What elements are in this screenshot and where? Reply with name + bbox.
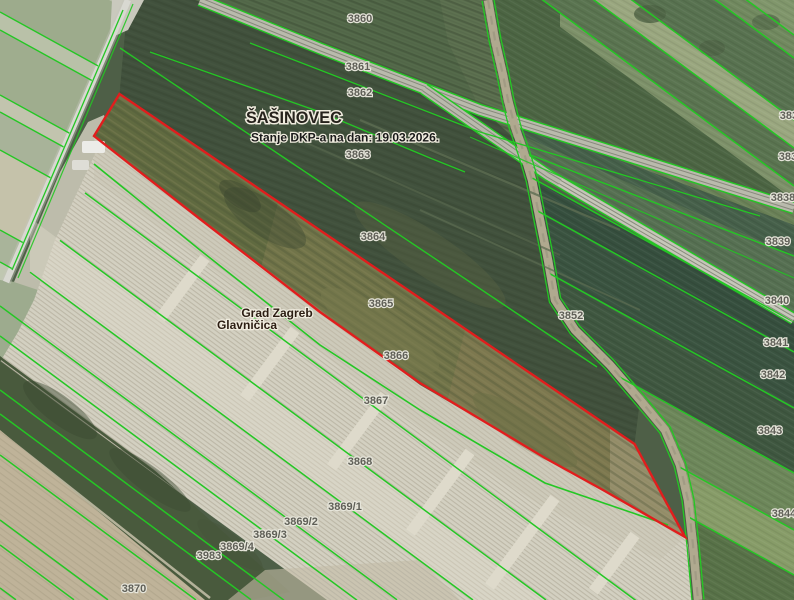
svg-text:3843: 3843 bbox=[758, 425, 782, 437]
svg-text:3852: 3852 bbox=[559, 310, 583, 322]
svg-text:3840: 3840 bbox=[765, 295, 789, 307]
svg-text:ŠAŠINOVEC: ŠAŠINOVEC bbox=[246, 108, 342, 127]
svg-text:Stanje DKP-a na dan: 19.03.202: Stanje DKP-a na dan: 19.03.2026. bbox=[251, 131, 439, 145]
svg-text:3864: 3864 bbox=[361, 231, 386, 243]
svg-text:3860: 3860 bbox=[348, 13, 372, 25]
svg-text:3869/2: 3869/2 bbox=[284, 516, 318, 528]
svg-text:3867: 3867 bbox=[364, 395, 388, 407]
svg-text:3837: 3837 bbox=[779, 151, 794, 163]
svg-text:3861: 3861 bbox=[346, 61, 370, 73]
svg-text:3844: 3844 bbox=[772, 508, 794, 520]
svg-text:3862: 3862 bbox=[348, 87, 372, 99]
svg-text:3865: 3865 bbox=[369, 298, 393, 310]
svg-text:3863: 3863 bbox=[346, 149, 370, 161]
svg-text:3870: 3870 bbox=[122, 583, 146, 595]
svg-text:3869/4: 3869/4 bbox=[220, 541, 255, 553]
svg-text:3841: 3841 bbox=[764, 337, 788, 349]
svg-text:3839: 3839 bbox=[766, 236, 790, 248]
svg-text:3836: 3836 bbox=[780, 110, 794, 122]
svg-text:3983: 3983 bbox=[197, 550, 221, 562]
svg-text:3869/3: 3869/3 bbox=[253, 529, 287, 541]
svg-text:3869/1: 3869/1 bbox=[328, 501, 362, 513]
svg-text:3866: 3866 bbox=[384, 350, 408, 362]
svg-text:3838: 3838 bbox=[771, 192, 794, 204]
svg-text:3868: 3868 bbox=[348, 456, 372, 468]
svg-text:3842: 3842 bbox=[761, 369, 785, 381]
svg-text:Glavničica: Glavničica bbox=[217, 318, 277, 332]
